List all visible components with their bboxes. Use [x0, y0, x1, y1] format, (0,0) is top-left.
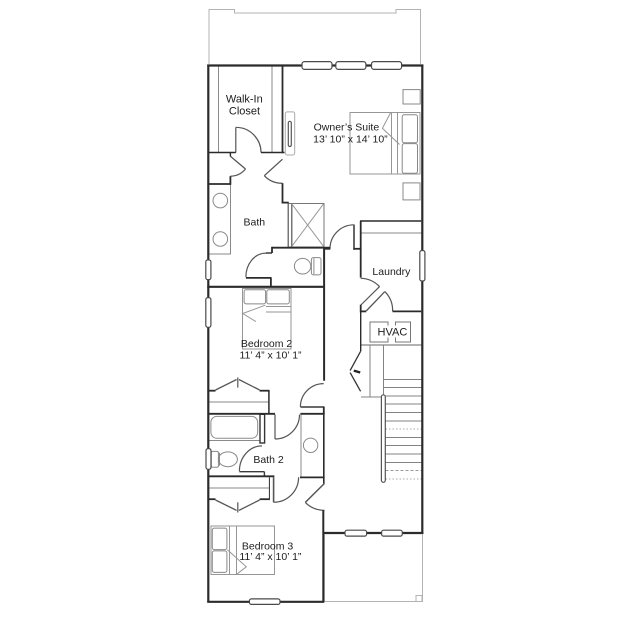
svg-text:Bath: Bath — [243, 217, 265, 229]
svg-text:Bedroom 2: Bedroom 2 — [241, 338, 293, 350]
svg-text:HVAC: HVAC — [378, 326, 408, 338]
svg-text:13’ 10” x 14’ 10”: 13’ 10” x 14’ 10” — [313, 134, 388, 146]
svg-text:Walk-In: Walk-In — [226, 94, 263, 106]
svg-text:Bath 2: Bath 2 — [253, 454, 284, 466]
svg-text:Closet: Closet — [229, 106, 260, 118]
svg-text:Owner’s Suite: Owner’s Suite — [314, 122, 380, 134]
svg-text:11’ 4” x 10’ 1”: 11’ 4” x 10’ 1” — [239, 551, 302, 563]
svg-text:Laundry: Laundry — [372, 266, 411, 278]
svg-text:11’ 4” x 10’ 1”: 11’ 4” x 10’ 1” — [239, 350, 302, 362]
